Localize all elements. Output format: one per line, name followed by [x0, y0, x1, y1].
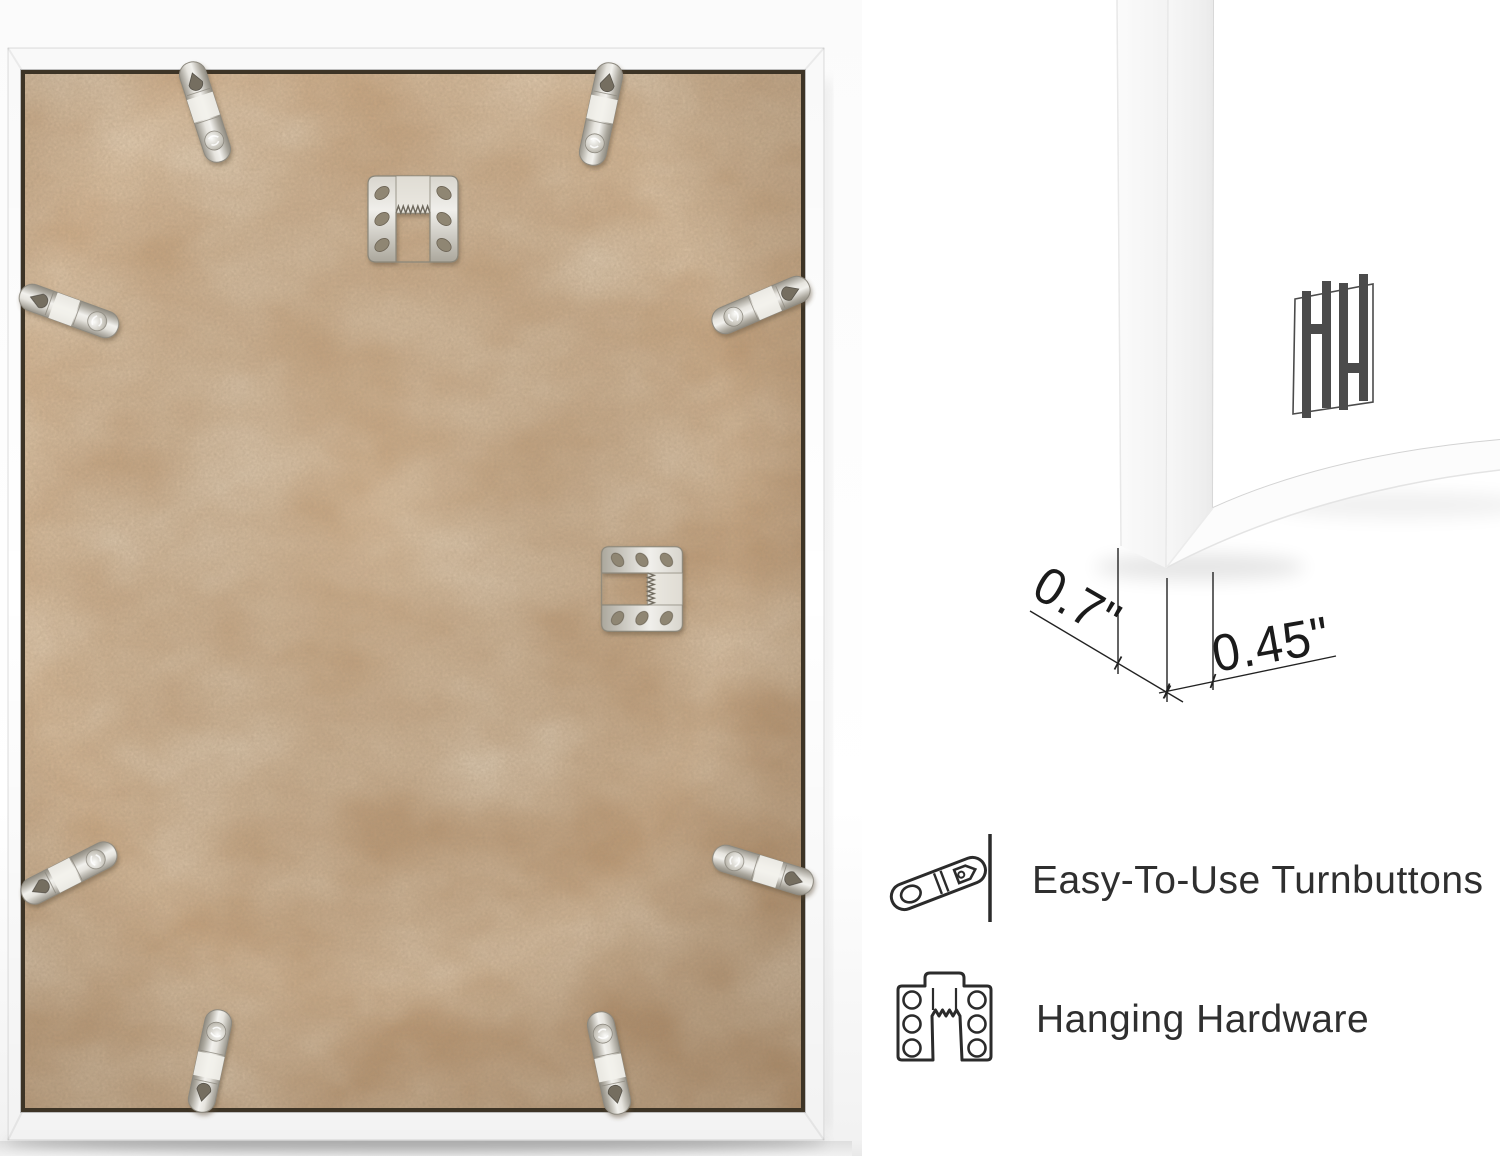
product-infographic: 0.7" 0.45" Easy-To-Use Turnbuttons	[0, 0, 1500, 1156]
frame-front-face	[1166, 0, 1214, 568]
hanging-hardware-icon	[888, 966, 1002, 1068]
feature-label: Hanging Hardware	[1036, 996, 1369, 1039]
matte-area	[1213, 0, 1500, 508]
frame-side-face	[1117, 0, 1168, 568]
feature-label: Easy-To-Use Turnbuttons	[1032, 857, 1484, 900]
corner-shadow	[1095, 554, 1305, 580]
turnbutton-icon	[886, 830, 998, 926]
feature-row-turnbuttons: Easy-To-Use Turnbuttons	[886, 830, 1484, 926]
mdf-board	[23, 72, 803, 1110]
feature-row-hanging-hardware: Hanging Hardware	[888, 966, 1369, 1068]
frame-back-photo	[0, 0, 862, 1156]
